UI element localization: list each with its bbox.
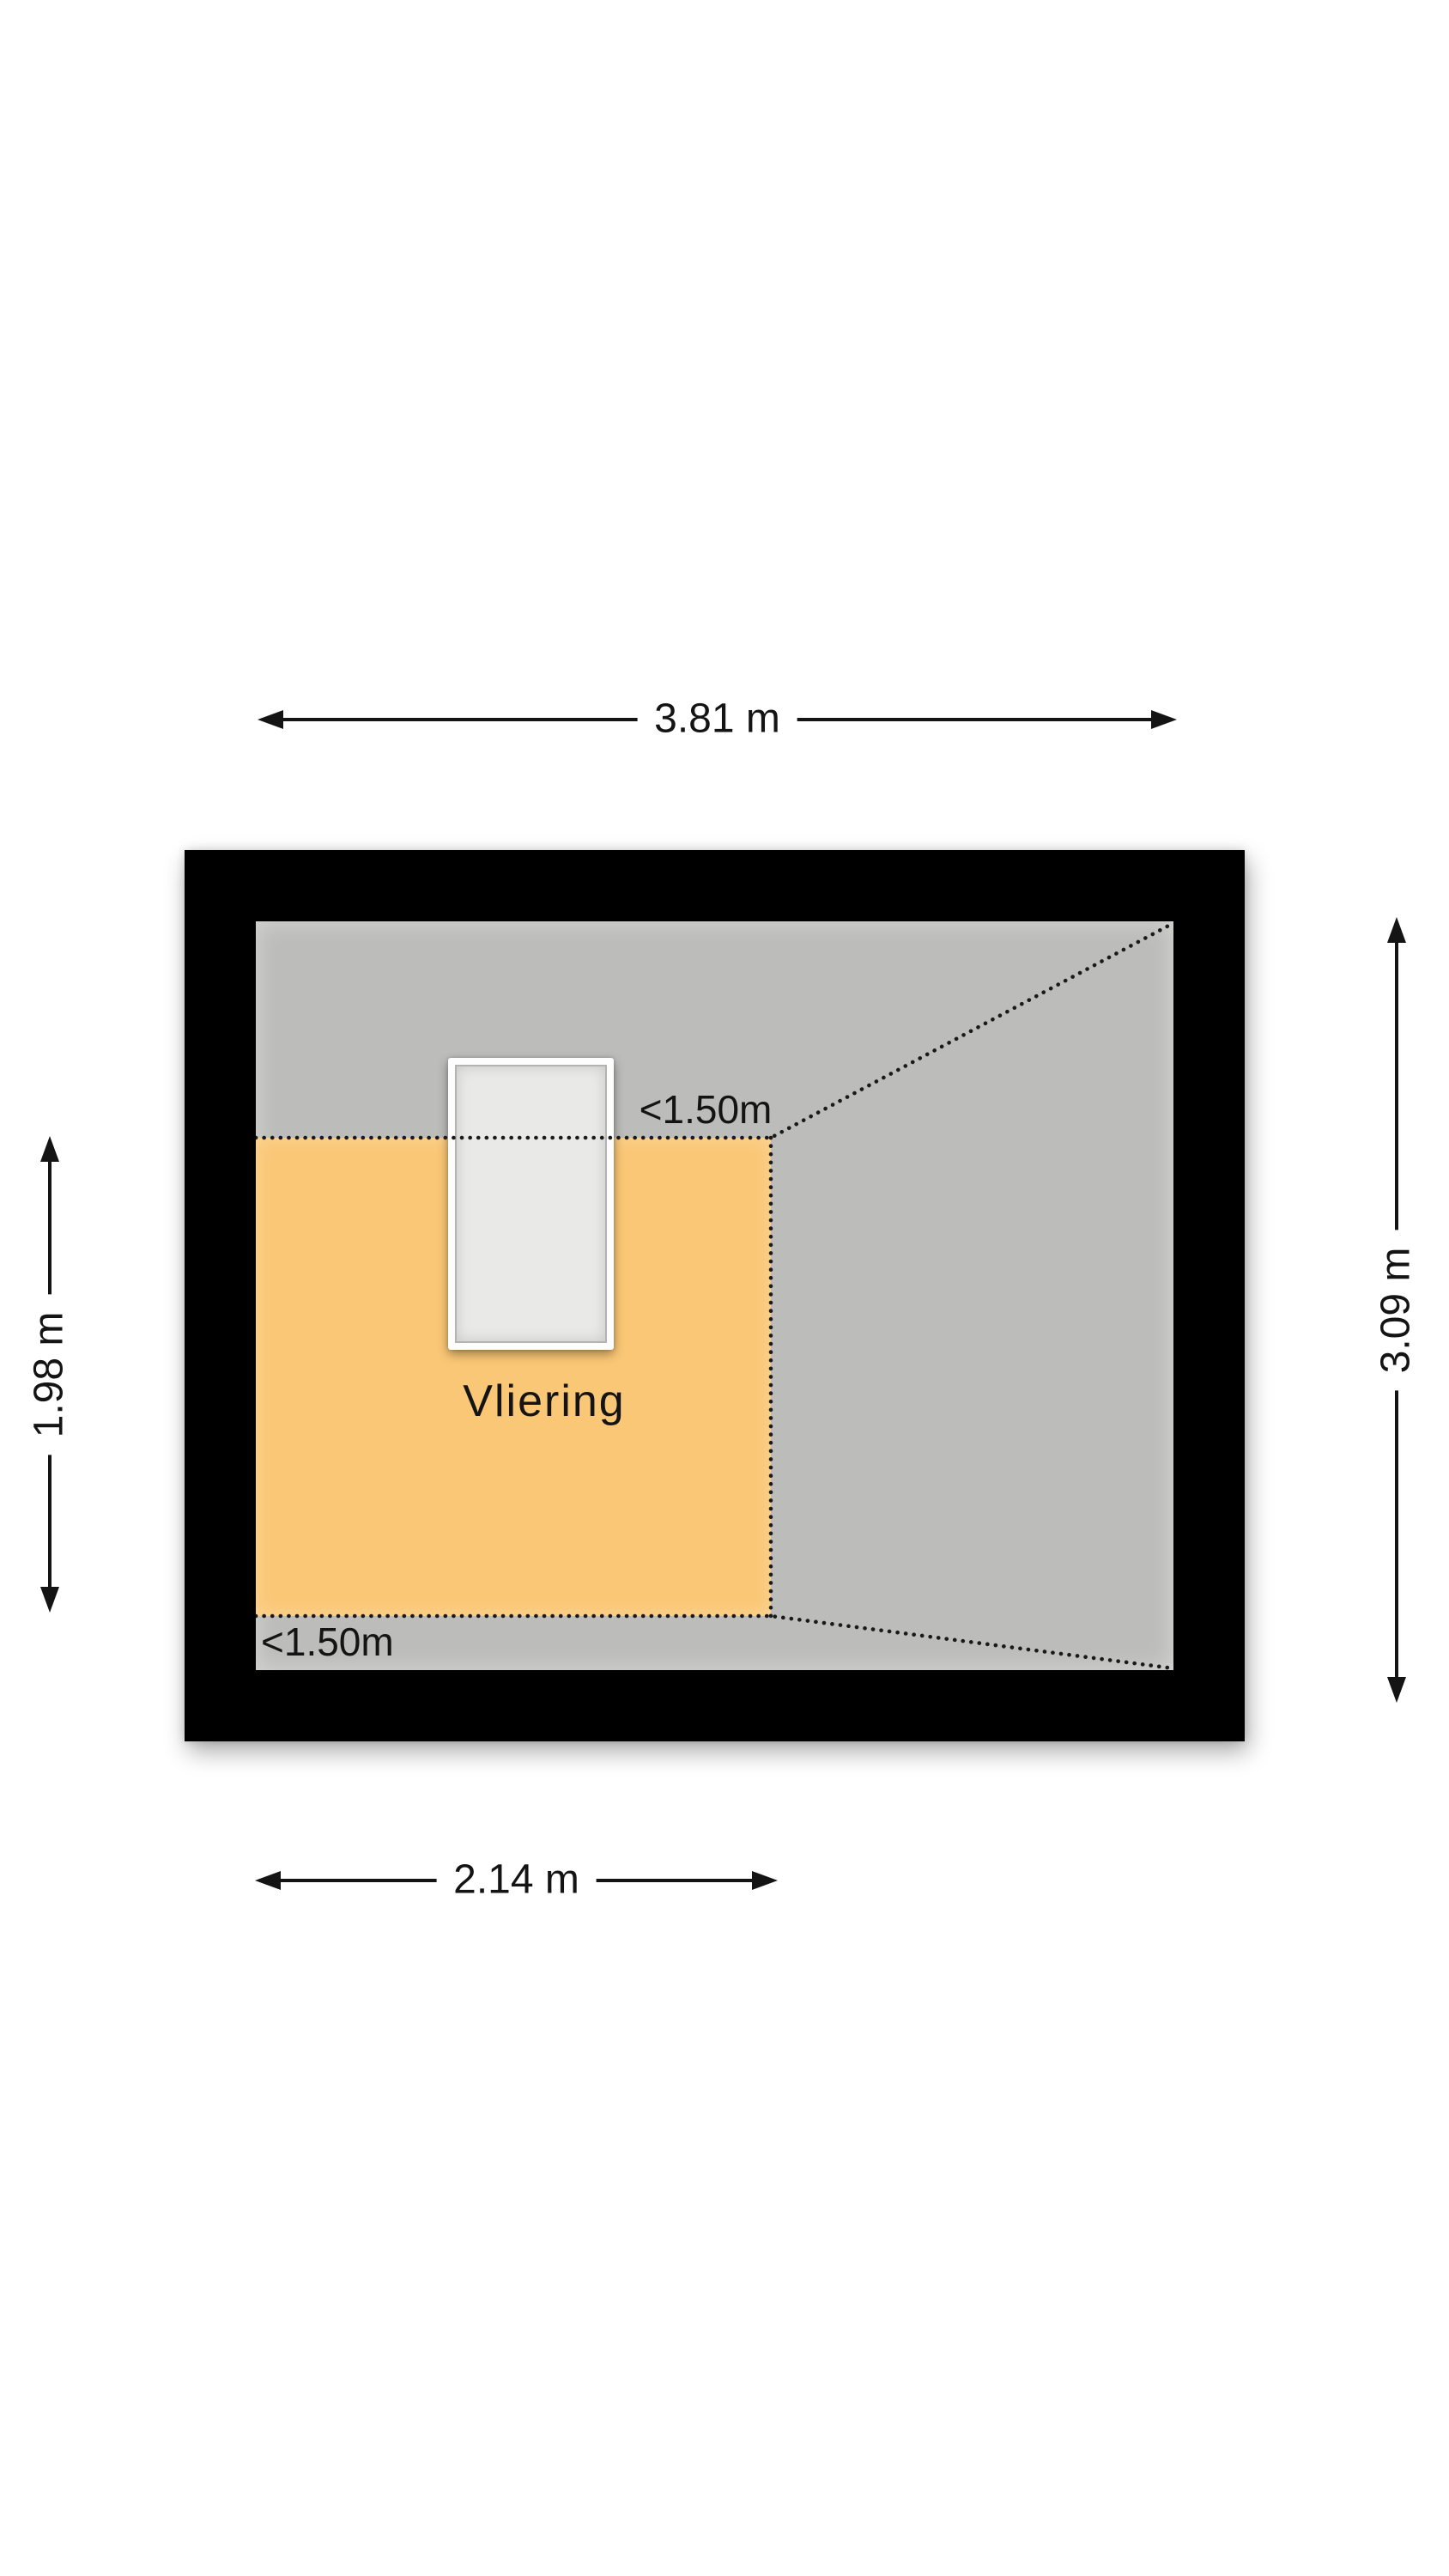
floorplan-wall-frame: Vliering <1.50m <1.50m xyxy=(185,850,1245,1741)
arrowhead-up-icon xyxy=(40,1136,59,1162)
dimension-left-height: 1.98 m xyxy=(29,1136,70,1613)
dimension-right-height: 3.09 m xyxy=(1376,917,1417,1703)
dimension-top-label: 3.81 m xyxy=(637,696,797,744)
arrowhead-left-icon xyxy=(255,1871,281,1890)
arrowhead-right-icon xyxy=(752,1871,778,1890)
floorplan-page: 3.81 m 1.98 m 3.09 m 2.14 m xyxy=(0,0,1449,2576)
dimension-top-width: 3.81 m xyxy=(258,696,1177,744)
height-boundary-dotted-lines xyxy=(256,921,1173,1670)
dimension-bottom-width: 2.14 m xyxy=(255,1856,778,1905)
height-marker-lower: <1.50m xyxy=(261,1619,394,1665)
dimension-left-label: 1.98 m xyxy=(26,1294,75,1455)
arrowhead-up-icon xyxy=(1387,917,1406,943)
height-marker-upper: <1.50m xyxy=(640,1086,773,1133)
dimension-bottom-label: 2.14 m xyxy=(436,1856,597,1905)
arrowhead-left-icon xyxy=(258,710,283,729)
arrowhead-down-icon xyxy=(40,1587,59,1613)
room-name-label: Vliering xyxy=(463,1376,625,1427)
arrowhead-down-icon xyxy=(1387,1677,1406,1703)
floor-area: Vliering <1.50m <1.50m xyxy=(256,921,1173,1670)
arrowhead-right-icon xyxy=(1151,710,1177,729)
dimension-right-label: 3.09 m xyxy=(1373,1230,1422,1390)
